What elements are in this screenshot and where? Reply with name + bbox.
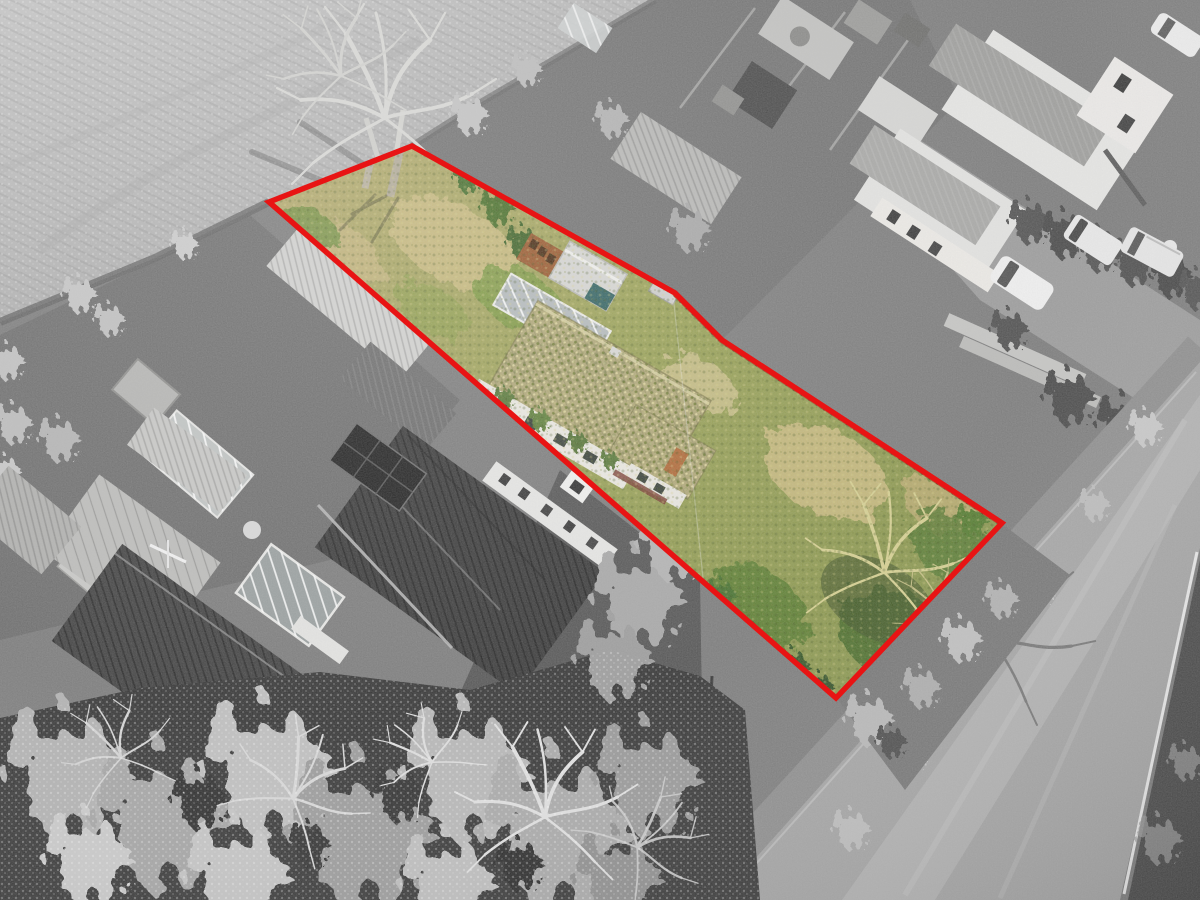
aerial-photo-canvas (0, 0, 1200, 900)
aerial-photo (0, 0, 1200, 900)
vignette (0, 0, 1200, 900)
